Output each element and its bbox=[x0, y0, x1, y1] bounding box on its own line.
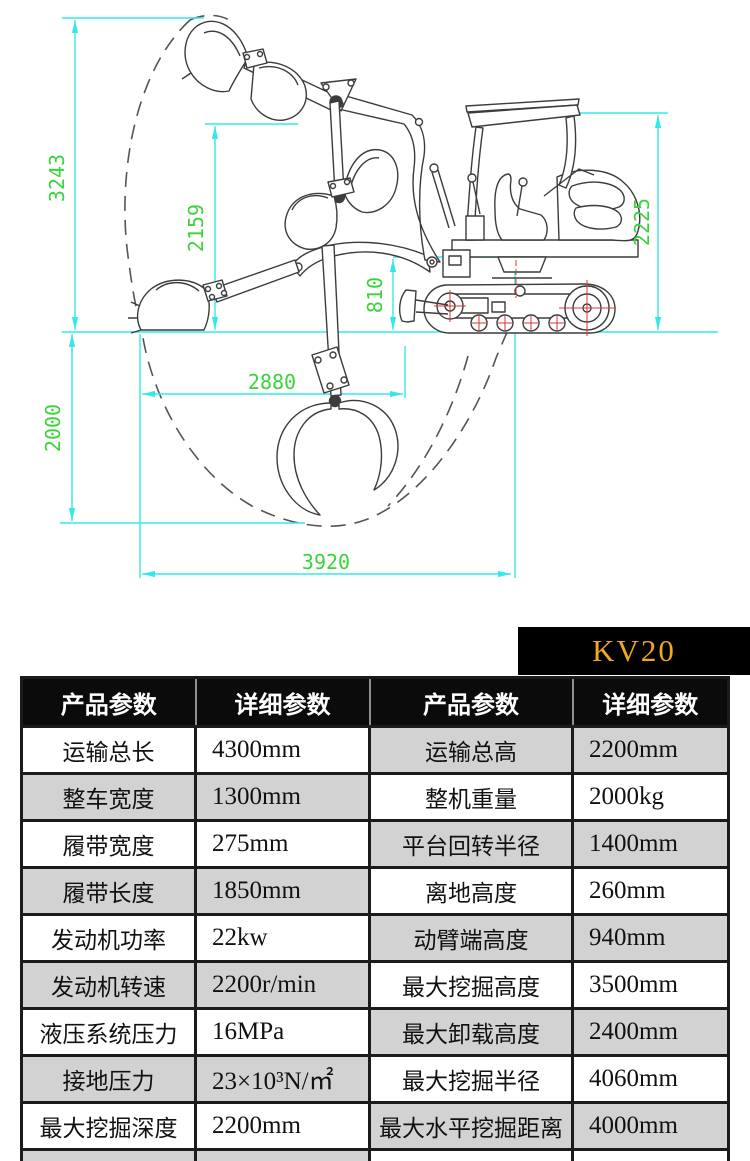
spec-label-cell: 运输总高 bbox=[370, 727, 573, 774]
spec-value-cell: 2200mm bbox=[573, 727, 729, 774]
header-value-right: 详细参数 bbox=[573, 678, 729, 727]
spec-label-cell: 整车宽度 bbox=[22, 774, 196, 821]
spec-value-cell: 260mm bbox=[573, 868, 729, 915]
spec-row: 运输总长4300mm运输总高2200mm bbox=[22, 727, 729, 774]
spec-value-cell: 4060mm bbox=[573, 1056, 729, 1103]
upper-platform bbox=[443, 240, 638, 278]
header-param-right: 产品参数 bbox=[370, 678, 573, 727]
model-name: KV20 bbox=[592, 633, 676, 669]
spec-value-cell: 4000mm bbox=[573, 1103, 729, 1150]
spec-label-cell: 最大卸载高度 bbox=[370, 1009, 573, 1056]
dim-label-2225: 2225 bbox=[630, 198, 654, 246]
dim-label-2880: 2880 bbox=[248, 370, 296, 394]
spec-sheet-page: 3243 2159 810 2225 2000 2880 3920 KV20 产… bbox=[0, 0, 750, 1161]
spec-label-cell: 最大挖掘高度 bbox=[370, 962, 573, 1009]
bucket-max-depth bbox=[277, 401, 398, 515]
spec-row: 整车宽度1300mm整机重量2000kg bbox=[22, 774, 729, 821]
spec-row: 液压系统压力16MPa最大卸载高度2400mm bbox=[22, 1009, 729, 1056]
spec-row: 发动机转速2200r/min最大挖掘高度3500mm bbox=[22, 962, 729, 1009]
spec-value-cell: 2400mm bbox=[573, 1009, 729, 1056]
working-range-diagram: 3243 2159 810 2225 2000 2880 3920 bbox=[0, 0, 750, 620]
spec-label-cell: 平台回转半径 bbox=[370, 821, 573, 868]
header-param-left: 产品参数 bbox=[22, 678, 196, 727]
spec-label-cell: 履带宽度 bbox=[22, 821, 196, 868]
spec-label-cell: 最大水平挖掘距离 bbox=[370, 1103, 573, 1150]
spec-value-cell: 2200mm bbox=[196, 1103, 370, 1150]
spec-label-cell: 履带长度 bbox=[22, 868, 196, 915]
spec-value-cell: 1400mm bbox=[573, 821, 729, 868]
arm-depth bbox=[312, 245, 349, 407]
spec-value-cell: 3100mm bbox=[573, 1150, 729, 1161]
spec-value-cell: 1850mm bbox=[196, 868, 370, 915]
spec-label-cell: 最大挖掘高度半径 bbox=[370, 1150, 573, 1161]
spec-value-cell: 1300mm bbox=[196, 774, 370, 821]
spec-value-cell: 2200r/min bbox=[196, 962, 370, 1009]
excavator-drawing bbox=[128, 21, 640, 515]
bucket-ground bbox=[128, 280, 227, 333]
spec-label-cell: 液压系统压力 bbox=[22, 1009, 196, 1056]
spec-row: 最大挖掘深度2200mm最大水平挖掘距离4000mm bbox=[22, 1103, 729, 1150]
spec-label-cell: 发动机功率 bbox=[22, 915, 196, 962]
dim-label-2159: 2159 bbox=[184, 204, 208, 252]
spec-value-cell: 22kw bbox=[196, 915, 370, 962]
spec-row: 接地压力23×10³N/㎡最大挖掘半径4060mm bbox=[22, 1056, 729, 1103]
spec-label-cell: 动臂端高度 bbox=[370, 915, 573, 962]
dim-label-810: 810 bbox=[363, 277, 387, 313]
spec-label-cell: 发动机转速 bbox=[22, 962, 196, 1009]
spec-value-cell: 3500mm bbox=[573, 962, 729, 1009]
spec-table-header: 产品参数 详细参数 产品参数 详细参数 bbox=[22, 678, 729, 727]
header-row: 产品参数 详细参数 产品参数 详细参数 bbox=[22, 678, 729, 727]
spec-value-cell: 1900mm bbox=[196, 1150, 370, 1161]
spec-label-cell: 离地高度 bbox=[370, 868, 573, 915]
spec-value-cell: 16MPa bbox=[196, 1009, 370, 1056]
header-value-left: 详细参数 bbox=[196, 678, 370, 727]
spec-value-cell: 275mm bbox=[196, 821, 370, 868]
dim-label-3920: 3920 bbox=[302, 550, 350, 574]
spec-table-body: 运输总长4300mm运输总高2200mm整车宽度1300mm整机重量2000kg… bbox=[22, 727, 729, 1161]
spec-label-cell: 最大挖掘深度 bbox=[22, 1103, 196, 1150]
spec-row: 最小回转半径1900mm最大挖掘高度半径3100mm bbox=[22, 1150, 729, 1161]
spec-value-cell: 2000kg bbox=[573, 774, 729, 821]
spec-table: 产品参数 详细参数 产品参数 详细参数 运输总长4300mm运输总高2200mm… bbox=[20, 676, 730, 1161]
spec-value-cell: 23×10³N/㎡ bbox=[196, 1056, 370, 1103]
spec-label-cell: 整机重量 bbox=[370, 774, 573, 821]
spec-value-cell: 4300mm bbox=[196, 727, 370, 774]
bucket-max-height bbox=[182, 21, 306, 120]
spec-label-cell: 最小回转半径 bbox=[22, 1150, 196, 1161]
spec-value-cell: 940mm bbox=[573, 915, 729, 962]
spec-row: 履带长度1850mm离地高度260mm bbox=[22, 868, 729, 915]
spec-row: 发动机功率22kw动臂端高度940mm bbox=[22, 915, 729, 962]
spec-label-cell: 运输总长 bbox=[22, 727, 196, 774]
dim-label-3243: 3243 bbox=[45, 154, 69, 202]
dim-label-2000: 2000 bbox=[41, 404, 65, 452]
spec-label-cell: 接地压力 bbox=[22, 1056, 196, 1103]
spec-row: 履带宽度275mm平台回转半径1400mm bbox=[22, 821, 729, 868]
model-banner: KV20 bbox=[518, 627, 750, 675]
spec-label-cell: 最大挖掘半径 bbox=[370, 1056, 573, 1103]
